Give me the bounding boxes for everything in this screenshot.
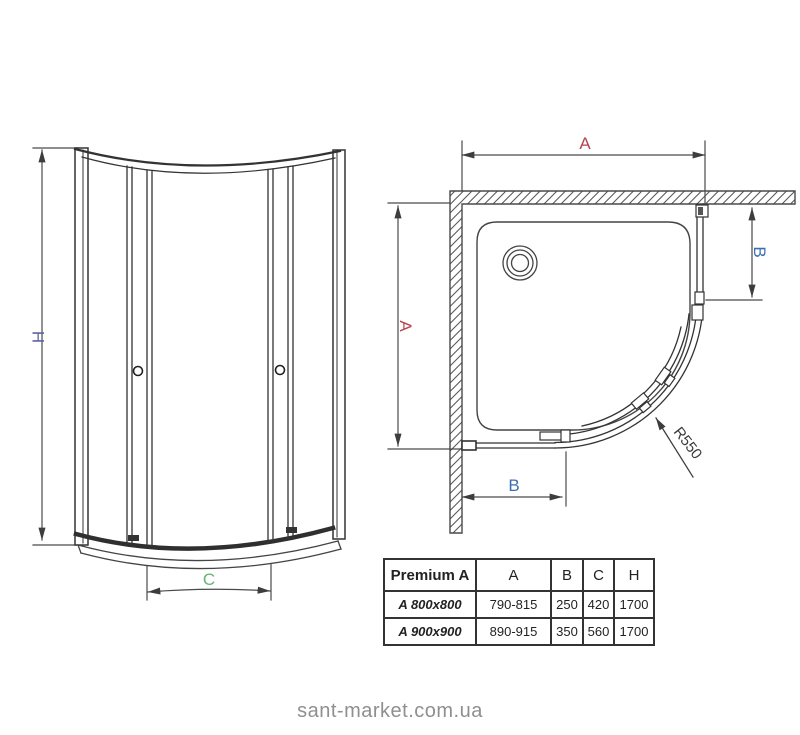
value-h: 1700 [614, 591, 654, 618]
bottom-bracket [540, 432, 563, 440]
left-knob-icon [134, 367, 143, 376]
watermark: sant-market.com.ua [0, 700, 780, 723]
height-dimension-label: H [29, 331, 48, 343]
model-name: A 800x800 [384, 591, 476, 618]
radius-label: R550 [670, 424, 705, 463]
dimension-b-bottom-label: B [508, 476, 519, 495]
column-header-b: B [551, 559, 583, 591]
height-dimension [33, 148, 79, 545]
table-title: Premium A [384, 559, 476, 591]
table-row: A 900x900 890-915 350 560 1700 [384, 618, 654, 645]
value-b: 250 [551, 591, 583, 618]
top-profile [75, 149, 340, 166]
right-roller [695, 292, 704, 304]
dimension-a-left-label: A [396, 320, 415, 332]
left-post [75, 148, 88, 545]
right-knob-icon [276, 366, 285, 375]
value-h: 1700 [614, 618, 654, 645]
dimension-b-right-label: B [750, 246, 769, 257]
value-a: 790-815 [476, 591, 551, 618]
width-dimension-label: C [203, 570, 215, 589]
table-row: A 800x800 790-815 250 420 1700 [384, 591, 654, 618]
wall-bracket [462, 441, 476, 450]
value-b: 350 [551, 618, 583, 645]
front-view: H [29, 148, 345, 600]
value-c: 420 [583, 591, 614, 618]
column-header-h: H [614, 559, 654, 591]
value-c: 560 [583, 618, 614, 645]
dimension-a-top-label: A [579, 134, 591, 153]
value-a: 890-915 [476, 618, 551, 645]
column-header-c: C [583, 559, 614, 591]
door-stiles [127, 166, 297, 547]
column-header-a: A [476, 559, 551, 591]
enclosure-frame [75, 148, 345, 569]
spec-table-header: Premium A A B C H [384, 559, 654, 591]
right-post [333, 150, 345, 539]
spec-table: Premium A A B C H A 800x800 790-815 250 … [383, 558, 655, 646]
model-name: A 900x900 [384, 618, 476, 645]
door-handles [134, 366, 285, 376]
top-view: A A [388, 134, 795, 533]
page: H [0, 0, 800, 735]
